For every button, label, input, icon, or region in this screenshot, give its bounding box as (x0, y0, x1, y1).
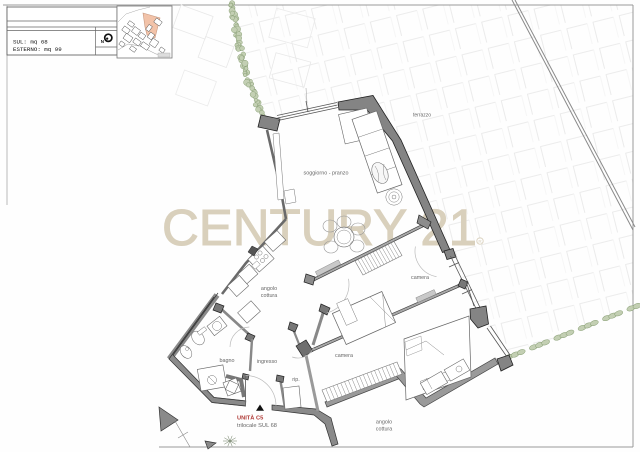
svg-text:ingresso: ingresso (257, 359, 277, 365)
svg-text:trilocale SUL 68: trilocale SUL 68 (237, 423, 277, 429)
svg-text:cottura: cottura (376, 427, 392, 433)
svg-text:rip.: rip. (292, 377, 300, 383)
svg-text:camera: camera (411, 275, 429, 281)
svg-text:camera: camera (335, 353, 353, 359)
svg-text:cottura: cottura (261, 293, 277, 299)
svg-text:soggiorno - pranzo: soggiorno - pranzo (304, 171, 349, 177)
svg-text:angolo: angolo (261, 286, 277, 292)
svg-text:SUL: mq 68: SUL: mq 68 (13, 39, 48, 46)
svg-text:terrazzo: terrazzo (413, 113, 431, 119)
svg-text:N: N (101, 39, 104, 44)
svg-text:UNITÀ C5: UNITÀ C5 (237, 415, 263, 422)
svg-text:ESTERNO: mq 99: ESTERNO: mq 99 (13, 46, 62, 53)
svg-text:bagno: bagno (220, 358, 235, 364)
svg-text:angolo: angolo (376, 420, 392, 426)
